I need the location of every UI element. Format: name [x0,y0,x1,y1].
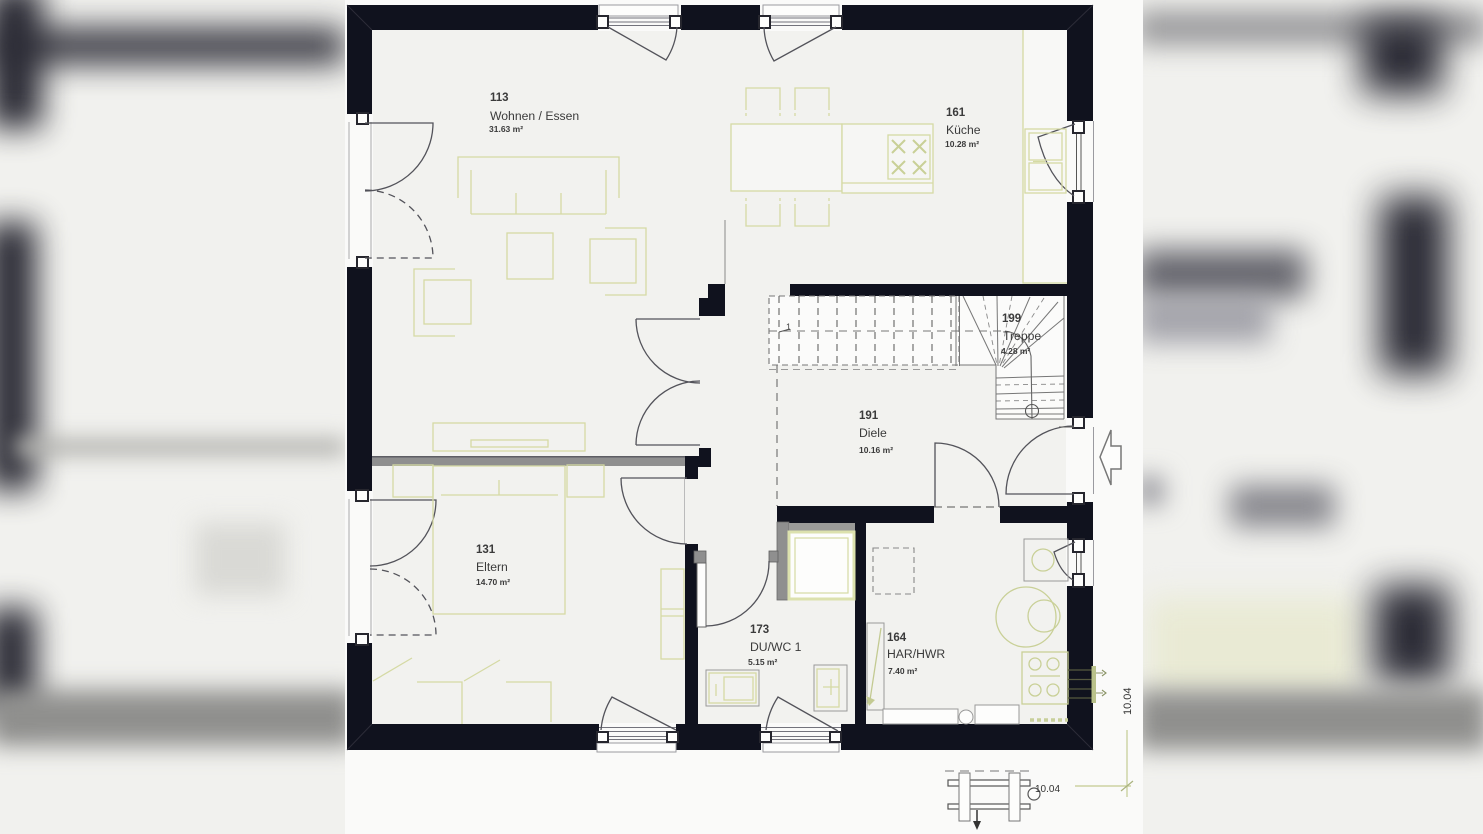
svg-text:113: 113 [490,92,509,104]
svg-text:7.40 m²: 7.40 m² [888,666,917,676]
svg-text:Wohnen / Essen: Wohnen / Essen [490,109,579,123]
svg-text:Treppe: Treppe [1003,329,1041,343]
svg-text:1: 1 [786,322,791,332]
svg-text:4.28 m²: 4.28 m² [1001,346,1030,356]
svg-text:161: 161 [946,107,966,119]
svg-text:10.16 m²: 10.16 m² [859,445,893,455]
svg-text:Diele: Diele [859,426,887,440]
svg-text:5.15 m²: 5.15 m² [748,657,777,667]
svg-text:HAR/HWR: HAR/HWR [887,647,945,661]
svg-text:Küche: Küche [946,123,981,137]
svg-text:199: 199 [1002,313,1021,325]
svg-text:191: 191 [859,410,879,422]
svg-text:164: 164 [887,632,907,644]
svg-text:Eltern: Eltern [476,560,508,574]
svg-text:10.04: 10.04 [1035,784,1060,795]
svg-text:DU/WC 1: DU/WC 1 [750,640,802,654]
svg-text:131: 131 [476,544,496,556]
svg-text:173: 173 [750,624,769,636]
svg-text:10.28 m²: 10.28 m² [945,139,979,149]
svg-text:14.70 m²: 14.70 m² [476,577,510,587]
svg-text:31.63 m²: 31.63 m² [489,124,523,134]
svg-text:10.04: 10.04 [1122,687,1134,715]
